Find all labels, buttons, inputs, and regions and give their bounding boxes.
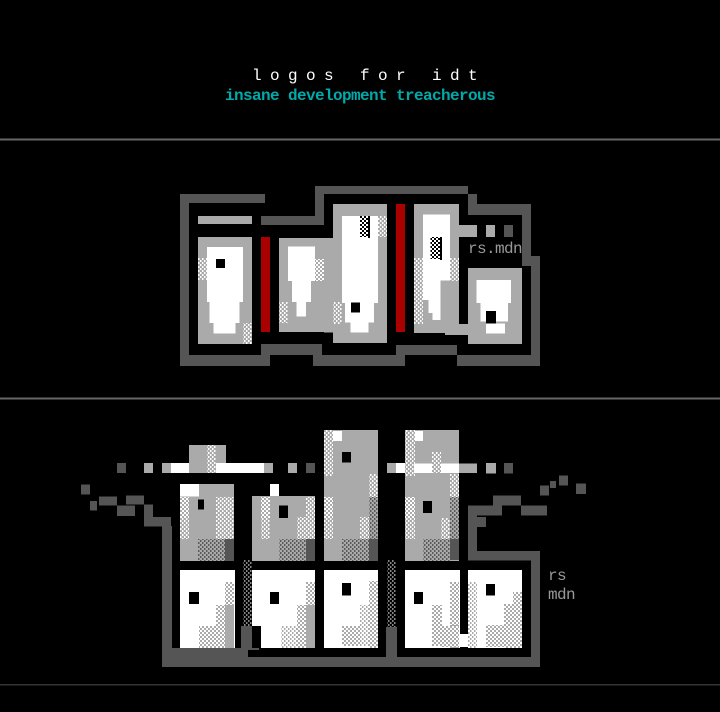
svg-text:mdn: mdn	[548, 586, 575, 604]
svg-text:rs: rs	[548, 567, 566, 585]
svg-text:rs.mdn: rs.mdn	[468, 240, 522, 258]
svg-text:insane development treacherous: insane development treacherous	[225, 87, 495, 105]
svg-text:l o g o s f o r i d t: l o g o s f o r i d t	[252, 67, 477, 85]
